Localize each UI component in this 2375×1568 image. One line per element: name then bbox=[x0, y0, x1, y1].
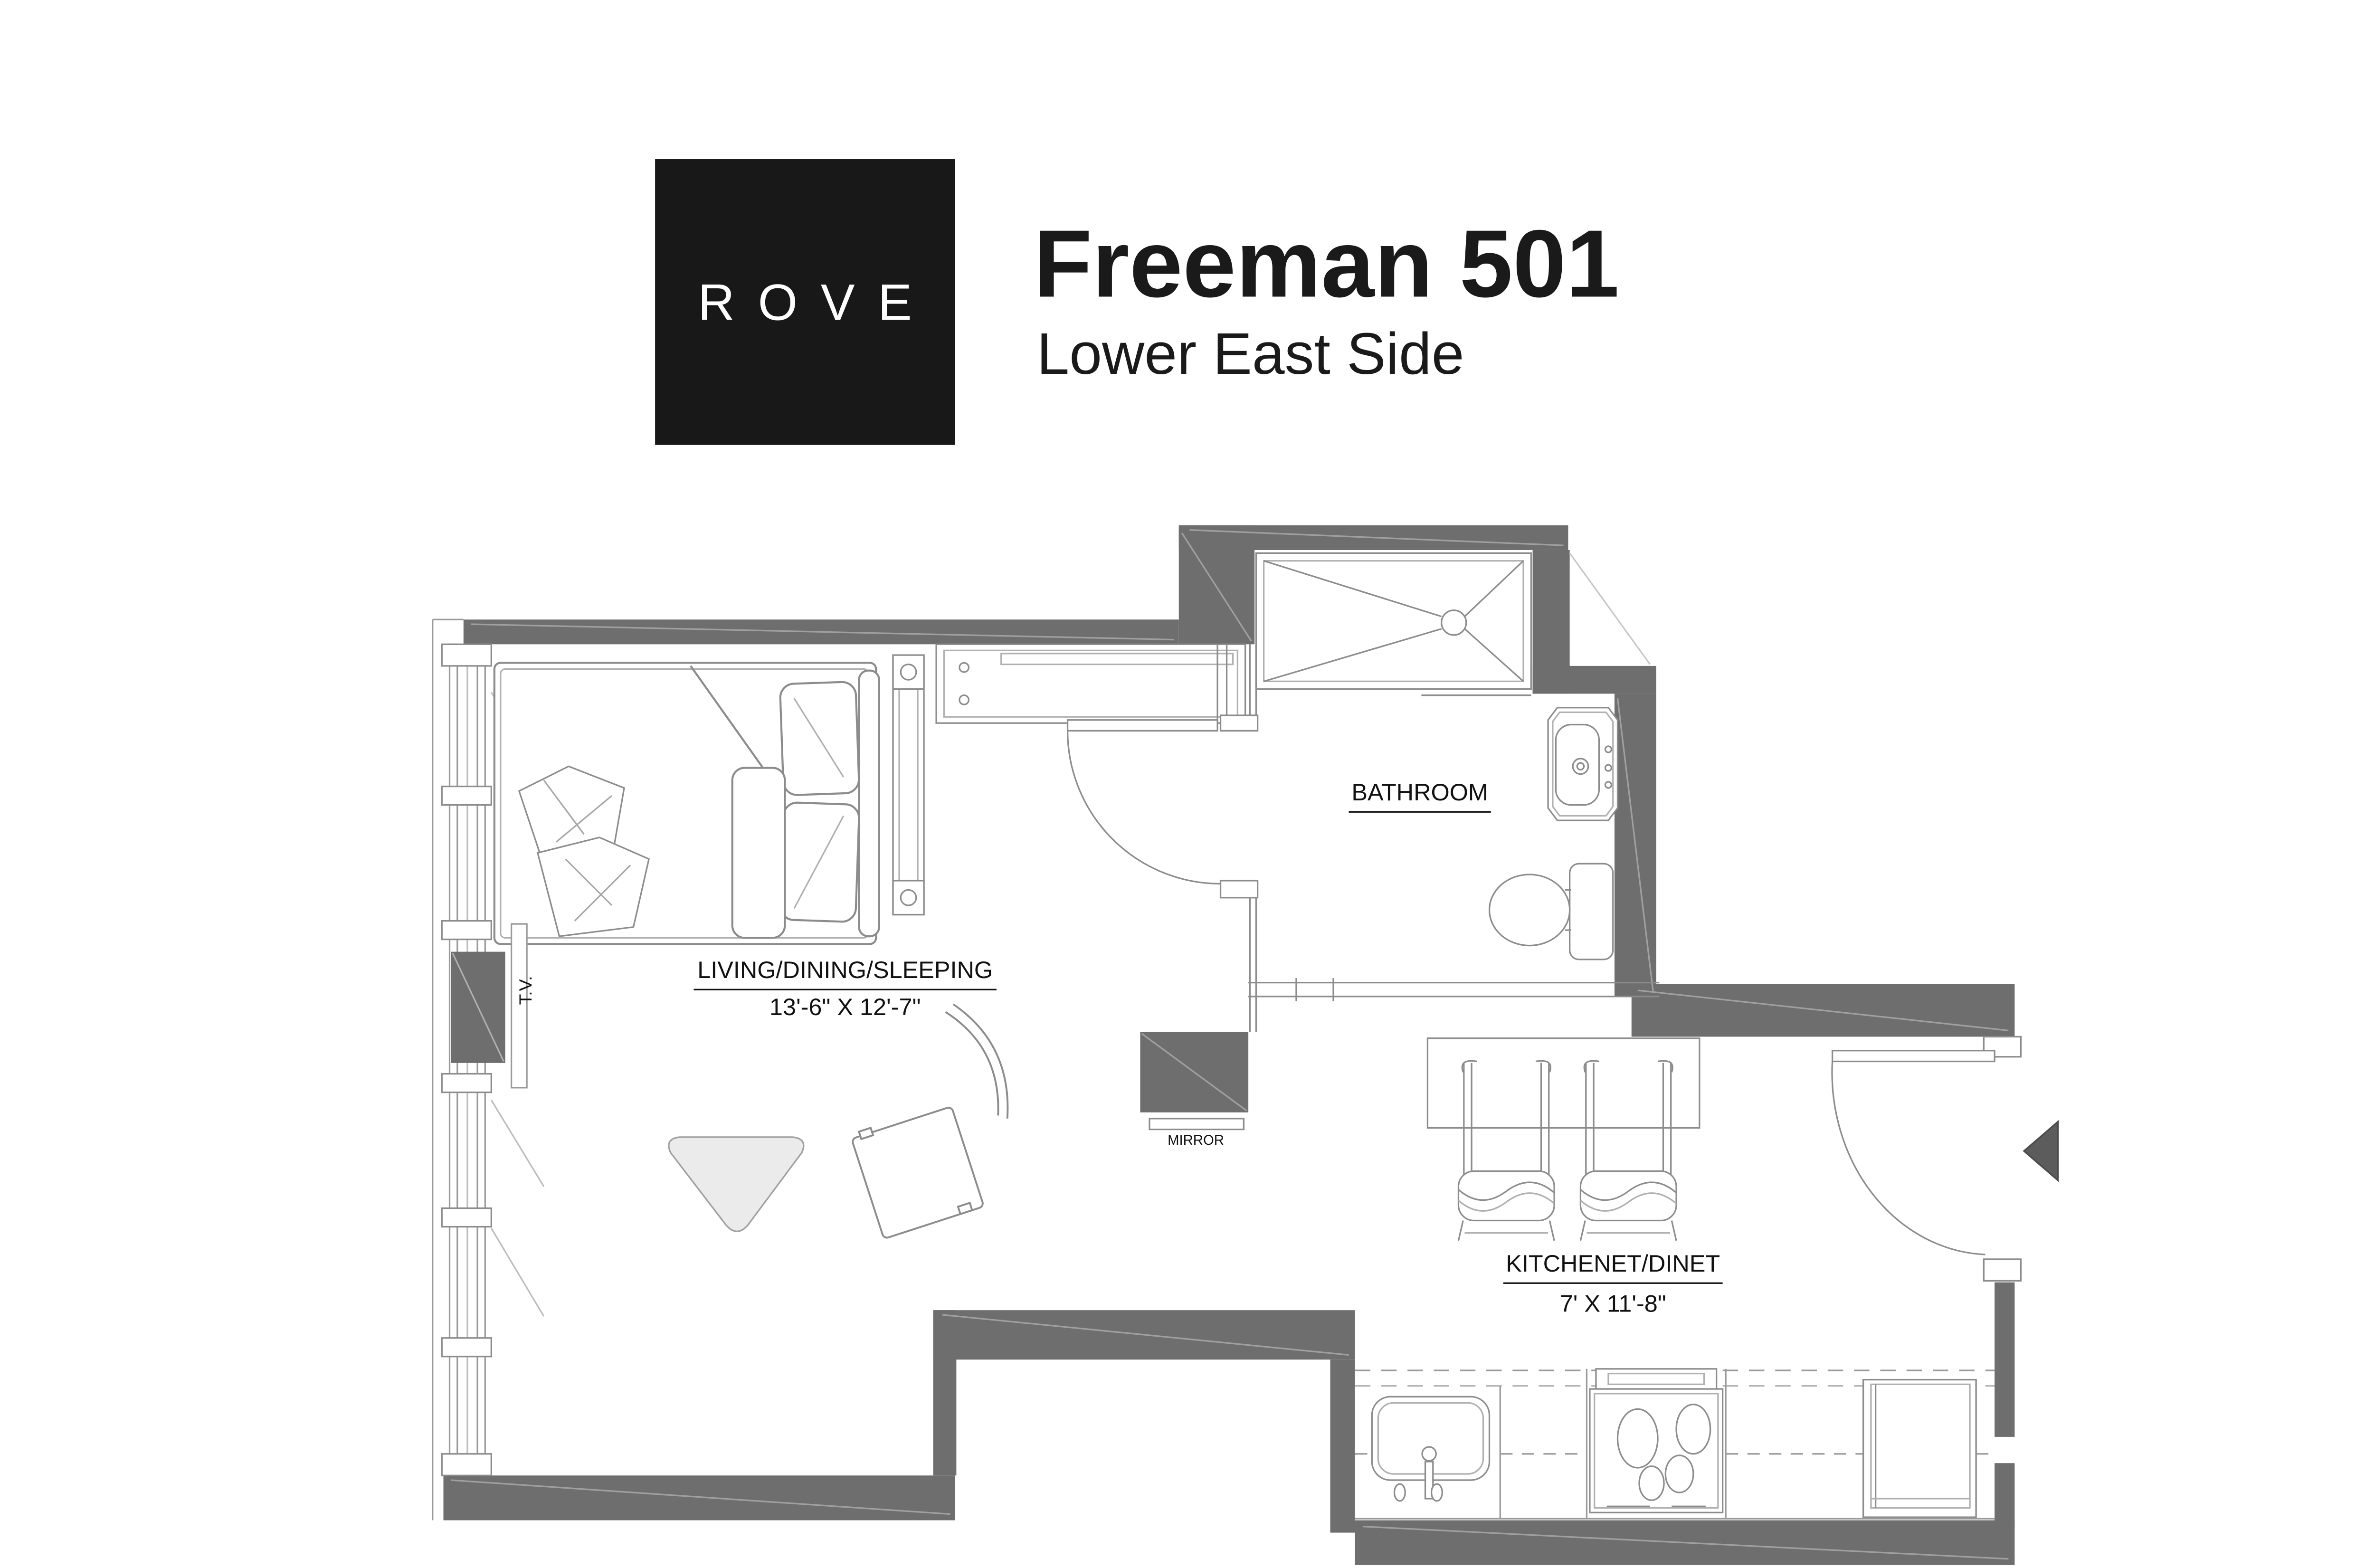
burner-icon bbox=[1617, 1409, 1658, 1468]
rug bbox=[669, 1137, 804, 1231]
living-room-label: LIVING/DINING/SLEEPING bbox=[660, 958, 1031, 990]
bed bbox=[494, 663, 879, 944]
bed-headboard bbox=[859, 671, 879, 936]
mirror-label: MIRROR bbox=[1142, 1132, 1250, 1148]
window-wall bbox=[433, 619, 485, 1520]
wall-kitchen-left bbox=[1330, 1359, 1355, 1532]
kitchenet-dimensions: 7' X 11'-8" bbox=[1427, 1292, 1798, 1320]
shower-drain bbox=[1442, 610, 1466, 635]
bathroom-door-leaf bbox=[1068, 720, 1218, 731]
kitchen-faucet-icon bbox=[1422, 1447, 1436, 1461]
floor-plan-page: ROVE Freeman 501 Lower East Side bbox=[0, 0, 2375, 1568]
living-room-dimensions: 13'-6" X 12'-7" bbox=[660, 995, 1031, 1023]
wall-south-living bbox=[443, 1475, 955, 1520]
bathroom-south-wall bbox=[1248, 978, 1659, 1001]
living-chair bbox=[852, 1004, 1008, 1239]
tv bbox=[451, 924, 527, 1088]
dining-table bbox=[1427, 1038, 1699, 1128]
burner-icon bbox=[1639, 1466, 1664, 1501]
radiator bbox=[893, 655, 924, 914]
entry-door bbox=[1832, 1036, 2021, 1281]
stove bbox=[1590, 1369, 1723, 1512]
entry-marker-icon bbox=[2024, 1121, 2058, 1180]
kitchenet-label: KITCHENET/DINET bbox=[1427, 1252, 1798, 1284]
entry-door-leaf bbox=[1833, 1051, 1995, 1062]
shower bbox=[1256, 553, 1531, 695]
bathroom-door-swing-arc bbox=[1068, 731, 1221, 884]
floor-plan-drawing bbox=[0, 0, 2375, 1568]
wall-kitchen-right-lower bbox=[1995, 1463, 2014, 1526]
tv-label: T.V. bbox=[518, 956, 540, 1024]
bathroom-sink bbox=[1548, 708, 1617, 820]
leader-line bbox=[1570, 553, 1650, 664]
entry-door-swing-arc bbox=[1832, 1062, 1985, 1255]
mirror bbox=[1149, 1119, 1244, 1130]
bathroom-label: BATHROOM bbox=[1296, 780, 1543, 813]
toilet bbox=[1490, 864, 1613, 960]
fridge bbox=[1863, 1380, 1976, 1517]
wall-kitchen-right-upper bbox=[1995, 1283, 2014, 1437]
wall-bathroom-step-right bbox=[1533, 666, 1656, 694]
dresser bbox=[936, 644, 1245, 723]
kitchen-sink bbox=[1372, 1397, 1489, 1501]
burner-icon bbox=[1676, 1405, 1710, 1454]
burner-icon bbox=[1665, 1455, 1693, 1492]
